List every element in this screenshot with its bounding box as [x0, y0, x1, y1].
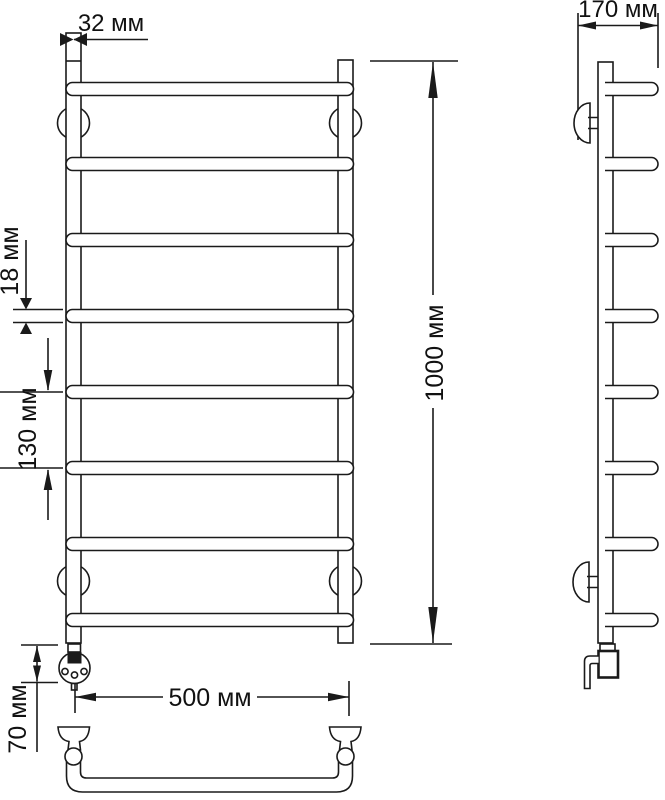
drawing-sheet: 32 мм 170 мм 1000 мм 18 мм — [0, 0, 665, 800]
side-rung-3 — [605, 234, 658, 247]
dimension-label-depth: 170 мм — [578, 0, 658, 23]
rung-8 — [66, 614, 354, 627]
rung-1 — [66, 83, 354, 96]
dimension-label-heater-offset: 70 мм — [4, 684, 32, 753]
power-cable — [585, 656, 599, 689]
rung-4 — [66, 310, 354, 323]
side-rung-5 — [605, 386, 658, 399]
connector-neck — [68, 644, 81, 652]
bottom-mount-ball-left — [65, 748, 82, 765]
bottom-view — [58, 727, 361, 792]
dimension-label-height: 1000 мм — [421, 305, 449, 402]
rung-6 — [66, 462, 354, 475]
front-rungs — [66, 83, 354, 627]
side-rung-7 — [605, 538, 658, 551]
bottom-mount-ball-right — [337, 748, 354, 765]
dimension-depth: 170 мм — [578, 0, 658, 68]
rung-5 — [66, 386, 354, 399]
side-rung-1 — [605, 83, 658, 96]
bottom-mount-bell-left — [58, 727, 90, 750]
dimension-label-tube-diameter: 32 мм — [78, 10, 144, 37]
dimension-label-rung-spacing: 130 мм — [14, 387, 42, 470]
dimension-height: 1000 мм — [370, 61, 458, 644]
side-rung-6 — [605, 462, 658, 475]
side-rung-4 — [605, 310, 658, 323]
dimension-heater-offset: 70 мм — [4, 645, 58, 754]
side-riser-tube — [598, 62, 613, 643]
dimension-rung-spacing: 130 мм — [0, 338, 63, 520]
right-riser-tube — [338, 60, 353, 643]
left-riser-tube — [66, 33, 81, 643]
side-view — [573, 13, 658, 689]
towel-rail-technical-drawing: 32 мм 170 мм 1000 мм 18 мм — [0, 0, 665, 800]
front-view — [58, 33, 362, 690]
rung-7 — [66, 538, 354, 551]
dimensions: 32 мм 170 мм 1000 мм 18 мм — [0, 0, 658, 754]
dimension-label-rung-diameter: 18 мм — [0, 226, 24, 295]
bottom-u-tube — [67, 758, 353, 792]
side-heater — [585, 644, 619, 689]
side-bracket-top — [574, 103, 590, 143]
rung-3 — [66, 234, 354, 247]
side-bracket-bottom — [573, 562, 589, 602]
dimension-label-width: 500 мм — [168, 684, 251, 712]
heater-housing — [599, 651, 619, 678]
dimension-width: 500 мм — [75, 681, 349, 716]
electric-connector — [59, 644, 90, 690]
rung-2 — [66, 158, 354, 171]
bottom-mount-bell-right — [330, 727, 362, 750]
connector-terminal-block — [68, 652, 82, 664]
side-rung-2 — [605, 158, 658, 171]
dimension-rung-diameter: 18 мм — [0, 226, 63, 334]
side-rung-8 — [605, 614, 658, 627]
